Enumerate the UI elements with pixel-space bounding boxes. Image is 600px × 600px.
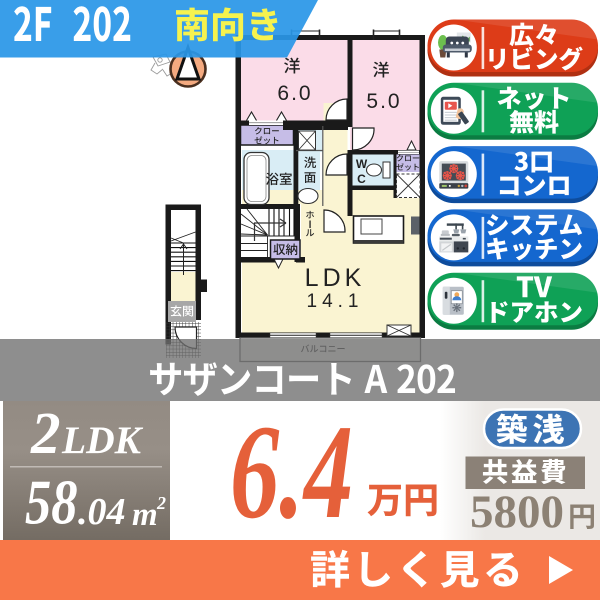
svg-text:.04: .04 (78, 491, 126, 533)
svg-text:m: m (132, 497, 158, 533)
svg-text:LDK: LDK (305, 264, 366, 292)
svg-text:W: W (356, 157, 368, 171)
svg-text:C: C (357, 172, 366, 186)
svg-text:2: 2 (30, 400, 61, 466)
svg-text:2: 2 (156, 493, 166, 513)
svg-text:5800: 5800 (470, 486, 564, 538)
svg-text:14.1: 14.1 (307, 291, 364, 312)
svg-text:6.4: 6.4 (230, 397, 353, 547)
svg-text:6.0: 6.0 (277, 82, 312, 105)
svg-text:58: 58 (25, 467, 77, 538)
svg-text:5.0: 5.0 (366, 90, 401, 113)
svg-text:LDK: LDK (61, 418, 144, 462)
